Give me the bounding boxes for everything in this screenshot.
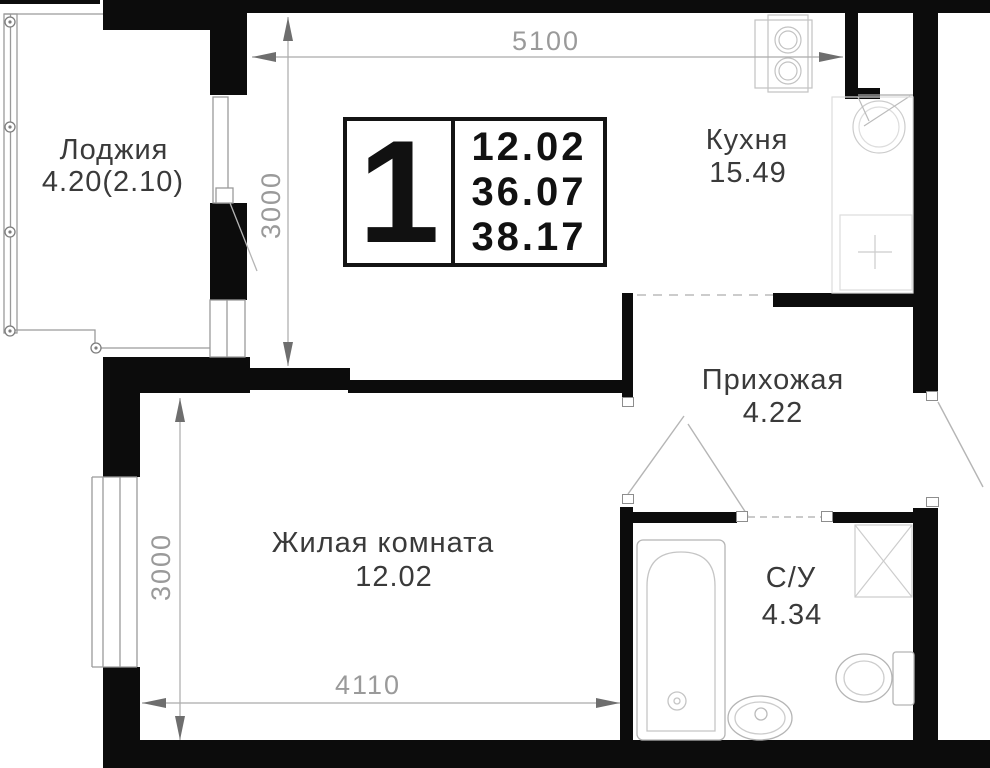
door-swing-bathroom — [688, 424, 748, 516]
room-area-loggia: 4.20(2.10) — [3, 167, 223, 197]
toilet-icon — [836, 652, 914, 705]
door-frame-marker — [926, 497, 939, 507]
area-value-total: 38.17 — [471, 215, 586, 260]
door-frame-marker — [622, 397, 634, 407]
room-label-loggia: Лоджия — [4, 135, 224, 165]
door-frame-marker — [926, 391, 938, 401]
area-value-living: 12.02 — [471, 125, 586, 170]
door-frame-marker — [622, 494, 634, 504]
room-area-bathroom: 4.34 — [712, 600, 872, 630]
room-area-living: 12.02 — [294, 562, 494, 592]
dimension-label-top: 5100 — [471, 27, 621, 55]
kitchen-sink-icon — [853, 96, 910, 153]
balcony-window — [210, 300, 245, 357]
dimension-label-bottom: 4110 — [293, 671, 443, 699]
living-room-window — [92, 477, 137, 667]
dimension-label-upper-left: 3000 — [257, 145, 285, 265]
room-area-kitchen: 15.49 — [648, 158, 848, 188]
room-count: 1 — [347, 121, 455, 263]
room-label-kitchen: Кухня — [647, 125, 847, 155]
door-frame-marker — [736, 511, 748, 522]
door-frame-marker — [821, 511, 833, 522]
washbasin-icon — [728, 696, 792, 740]
unit-info-badge: 1 12.02 36.07 38.17 — [343, 117, 607, 267]
room-label-living: Жилая комната — [233, 528, 533, 558]
floor-plan: Лоджия 4.20(2.10) Кухня 15.49 Прихожая 4… — [0, 0, 990, 768]
dimension-line-lower-left — [175, 398, 185, 740]
room-label-hallway: Прихожая — [653, 365, 893, 395]
area-value-usable: 36.07 — [471, 170, 586, 215]
room-label-bathroom: С/У — [711, 563, 871, 593]
area-values: 12.02 36.07 38.17 — [455, 121, 603, 263]
stove-icon — [755, 15, 812, 92]
room-area-hallway: 4.22 — [673, 398, 873, 428]
dimension-label-lower-left: 3000 — [147, 507, 175, 627]
door-swing-entry — [938, 402, 983, 487]
